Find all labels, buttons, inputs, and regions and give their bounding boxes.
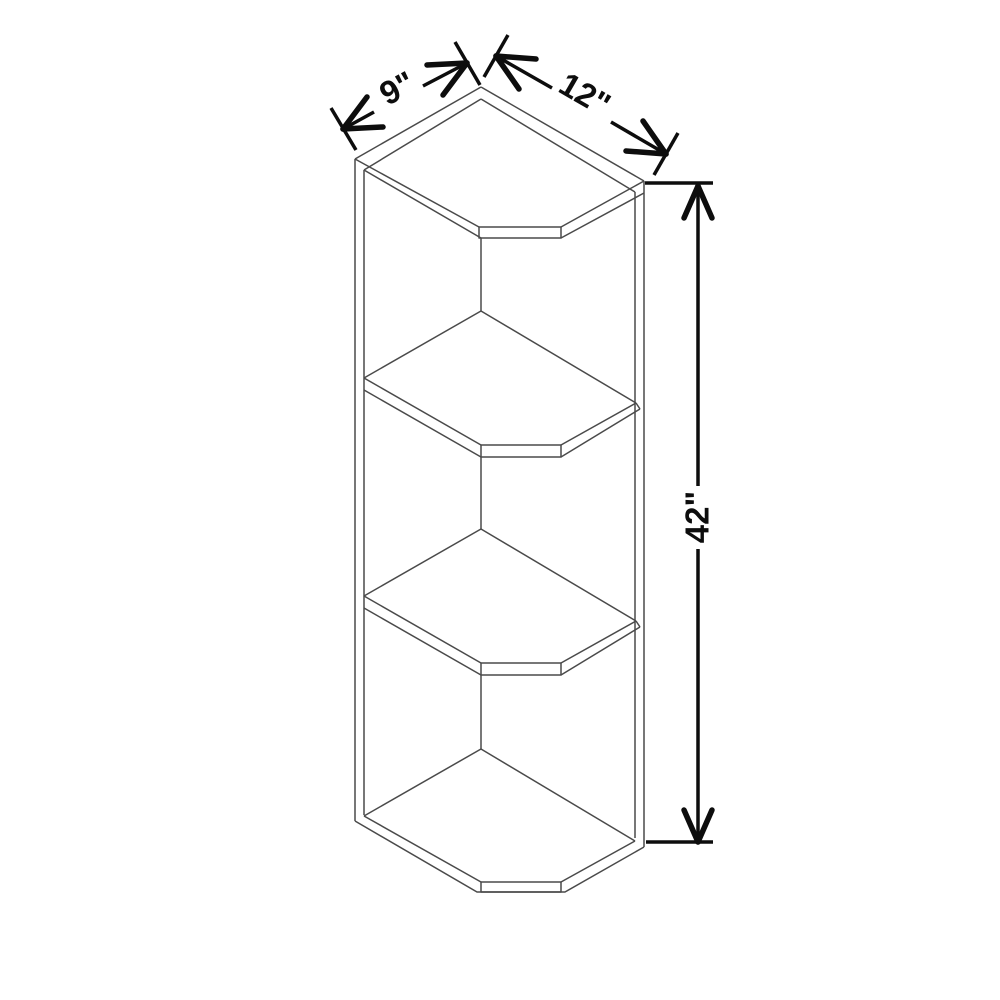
depth-dimension-label: 9"	[373, 64, 420, 113]
dimension-depth-9: 9"	[331, 42, 480, 150]
cabinet-body	[355, 87, 644, 892]
width-dimension-label: 12"	[553, 65, 617, 123]
right-wall-edges	[635, 181, 644, 847]
shelf-2	[364, 311, 640, 457]
shelf-3	[364, 529, 640, 675]
cabinet-line-drawing: 9" 12" 42"	[0, 0, 1000, 1000]
height-dimension-label: 42"	[679, 491, 716, 543]
cabinet-spec-diagram: 9" 12" 42"	[0, 0, 1000, 1000]
left-wall-edges	[355, 159, 364, 821]
shelf-bottom-panel	[355, 749, 644, 892]
dimension-height-42: 42"	[645, 183, 716, 842]
